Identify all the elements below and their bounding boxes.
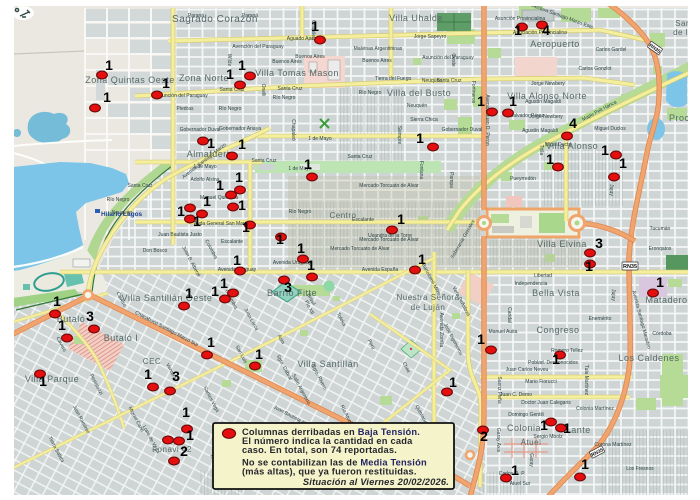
svg-text:Avención del Paraguay: Avención del Paraguay	[232, 44, 284, 50]
svg-text:Asunción del Paraguay: Asunción del Paraguay	[422, 55, 474, 61]
svg-text:1: 1	[511, 462, 519, 478]
svg-text:Atuel Sur: Atuel Sur	[510, 481, 531, 487]
svg-text:1: 1	[397, 211, 405, 227]
svg-text:(más altas), que ya fueron res: (más altas), que ya fueron restituidas.	[242, 467, 417, 477]
svg-text:Jorge Newbery: Jorge Newbery	[531, 81, 565, 87]
svg-text:ante: ante	[571, 425, 591, 435]
svg-text:Nuestra Señora: Nuestra Señora	[396, 293, 459, 302]
svg-text:Juan Carlos Neveu: Juan Carlos Neveu	[506, 367, 549, 373]
svg-text:Atuel: Atuel	[521, 438, 542, 447]
svg-text:1: 1	[203, 193, 211, 209]
svg-text:1: 1	[585, 258, 593, 274]
svg-text:Jorge Sapeyro: Jorge Sapeyro	[414, 34, 447, 40]
svg-text:Sagrado Corazón: Sagrado Corazón	[172, 14, 258, 25]
svg-text:1: 1	[297, 240, 305, 256]
svg-text:CEC: CEC	[143, 357, 161, 366]
svg-text:Saenz Peña: Saenz Peña	[496, 376, 502, 403]
svg-text:Jujuy: Jujuy	[610, 289, 616, 301]
svg-text:Trilla: Trilla	[538, 145, 544, 156]
svg-text:Córdoba: Córdoba	[652, 331, 671, 337]
svg-text:de Luján: de Luján	[411, 303, 446, 312]
svg-text:Río Negro: Río Negro	[107, 197, 130, 203]
svg-text:Independencia: Independencia	[515, 281, 548, 287]
svg-text:Miguel Duclos: Miguel Duclos	[594, 126, 626, 132]
svg-text:Villa del Busto: Villa del Busto	[387, 88, 451, 98]
svg-text:1: 1	[416, 130, 424, 146]
svg-text:Villa Santillán: Villa Santillán	[297, 359, 358, 369]
svg-text:Pueyrredón: Pueyrredón	[510, 176, 536, 182]
svg-text:1: 1	[449, 374, 457, 390]
svg-text:Situación al Viernes 20/02/202: Situación al Viernes 20/02/2026.	[303, 477, 449, 487]
svg-text:Garay: Garay	[528, 453, 534, 467]
svg-text:2: 2	[180, 443, 188, 459]
svg-text:1: 1	[207, 334, 215, 350]
svg-text:Avenida Zorrilla: Avenida Zorrilla	[438, 313, 444, 348]
svg-text:1: 1	[307, 257, 315, 273]
svg-text:Manuel Auita: Manuel Auita	[489, 329, 518, 335]
svg-text:Río Negro: Río Negro	[219, 106, 242, 112]
svg-text:Los Fresnos: Los Fresnos	[626, 466, 654, 472]
svg-text:Gobernador Duval: Gobernador Duval	[442, 127, 483, 133]
svg-text:Gobernador Anaya: Gobernador Anaya	[219, 126, 261, 132]
svg-text:Colonia: Colonia	[507, 423, 541, 433]
svg-text:1 de Mayo: 1 de Mayo	[308, 136, 332, 142]
svg-text:1: 1	[563, 420, 571, 436]
svg-text:Butaló I: Butaló I	[104, 333, 139, 343]
svg-text:Domingo Gentili: Domingo Gentili	[508, 412, 544, 418]
svg-text:Enemérito: Enemérito	[589, 316, 612, 322]
svg-text:1: 1	[238, 136, 246, 152]
svg-text:1: 1	[509, 93, 517, 109]
svg-text:Barrio Fitte: Barrio Fitte	[267, 288, 317, 298]
svg-text:1: 1	[656, 274, 664, 290]
svg-text:Neuquén: Neuquén	[422, 78, 443, 84]
svg-text:1: 1	[546, 151, 554, 167]
svg-text:1: 1	[177, 203, 185, 219]
svg-text:1: 1	[193, 213, 201, 229]
svg-text:Salvador Pérez: Salvador Pérez	[510, 113, 545, 119]
svg-text:Jujuy: Jujuy	[608, 184, 614, 196]
svg-text:3: 3	[284, 279, 292, 295]
svg-text:1: 1	[552, 351, 560, 367]
svg-text:Gobernador Duval: Gobernador Duval	[180, 127, 221, 133]
svg-text:1: 1	[216, 177, 224, 193]
svg-text:1: 1	[540, 417, 548, 433]
svg-text:Santa Cruz: Santa Cruz	[347, 154, 373, 160]
svg-text:Villa Alonso: Villa Alonso	[546, 141, 598, 151]
svg-text:Mercado Torcuato de Alvar: Mercado Torcuato de Alvar	[359, 183, 419, 189]
svg-text:1: 1	[235, 169, 243, 185]
svg-text:Malvinas Argentininas: Malvinas Argentininas	[354, 46, 403, 52]
svg-text:1: 1	[53, 293, 61, 309]
svg-text:1: 1	[207, 135, 215, 151]
svg-text:1: 1	[39, 373, 47, 389]
svg-text:Río Negro: Río Negro	[273, 95, 296, 101]
svg-text:1: 1	[220, 275, 228, 291]
svg-text:Villa Uhalde: Villa Uhalde	[389, 13, 443, 23]
svg-text:1: 1	[418, 251, 426, 267]
svg-text:Fortineros: Fortineros	[470, 81, 476, 104]
svg-text:Oeste: Oeste	[450, 53, 456, 67]
svg-text:Zona Norte: Zona Norte	[179, 73, 229, 83]
svg-text:Piedras: Piedras	[177, 106, 194, 112]
svg-text:2: 2	[480, 428, 488, 444]
svg-text:Villa Parque: Villa Parque	[25, 374, 79, 384]
svg-text:Centro: Centro	[329, 211, 356, 220]
svg-text:1: 1	[581, 456, 589, 472]
svg-text:Los Caldenes: Los Caldenes	[618, 353, 679, 363]
svg-text:1: 1	[242, 219, 250, 235]
svg-text:Aeropuerto: Aeropuerto	[530, 39, 580, 49]
svg-text:1: 1	[103, 89, 111, 105]
svg-text:Santa Cruz: Santa Cruz	[127, 183, 153, 189]
svg-text:Corona Martínez: Corona Martínez	[594, 442, 632, 448]
svg-text:4: 4	[569, 115, 577, 131]
svg-text:Fontana: Fontana	[418, 161, 424, 180]
svg-text:1: 1	[276, 231, 284, 247]
svg-text:1: 1	[162, 75, 170, 91]
svg-text:Tierra del Fuego: Tierra del Fuego	[375, 76, 412, 82]
svg-text:Buenos Aires: Buenos Aires	[362, 58, 392, 64]
svg-text:Garay Axis: Garay Axis	[495, 428, 501, 453]
svg-text:caso. En total, son 74 reporta: caso. En total, son 74 reportadas.	[242, 445, 397, 455]
svg-text:1: 1	[477, 331, 485, 347]
svg-text:Caridal: Caridal	[506, 307, 512, 323]
svg-text:Carlos Gardel: Carlos Gardel	[596, 47, 627, 53]
svg-text:Congreso: Congreso	[536, 325, 579, 335]
svg-text:Chapaleó: Chapaleó	[290, 119, 296, 141]
svg-text:RN35: RN35	[623, 264, 637, 270]
svg-text:1: 1	[58, 317, 66, 333]
svg-text:Villa Tomas Mason: Villa Tomas Mason	[255, 68, 339, 78]
svg-text:1: 1	[238, 57, 246, 73]
svg-text:3: 3	[86, 308, 94, 324]
svg-text:1: 1	[144, 366, 152, 382]
svg-text:4: 4	[542, 22, 550, 38]
svg-text:Escalante: Escalante	[221, 239, 243, 245]
svg-text:Libertad: Libertad	[534, 273, 552, 279]
svg-text:Tula Martínez: Tula Martínez	[583, 365, 589, 396]
svg-text:Doctor Juan Calegaris: Doctor Juan Calegaris	[521, 400, 571, 406]
svg-text:Tucumán: Tucumán	[650, 226, 671, 232]
svg-text:Villa Santillán Oeste: Villa Santillán Oeste	[122, 293, 213, 303]
svg-text:1: 1	[255, 346, 263, 362]
svg-text:1: 1	[211, 283, 219, 299]
svg-text:Buenos Aires: Buenos Aires	[295, 54, 325, 60]
svg-text:Santa Cruz: Santa Cruz	[251, 158, 277, 164]
svg-text:Mario Fiorucci: Mario Fiorucci	[525, 379, 556, 385]
svg-text:Eronqatos: Eronqatos	[649, 246, 672, 252]
svg-text:Avenida España: Avenida España	[362, 267, 399, 273]
svg-text:Wilde: Wilde	[226, 54, 232, 67]
svg-text:1: 1	[182, 404, 190, 420]
svg-text:Villa Alonso Norte: Villa Alonso Norte	[507, 91, 587, 101]
svg-text:Colonia Martínez: Colonia Martínez	[576, 406, 614, 412]
svg-text:1: 1	[233, 252, 241, 268]
svg-text:1: 1	[311, 18, 319, 34]
svg-text:Agustín Magaldi: Agustín Magaldi	[522, 128, 558, 134]
svg-text:Juan C. Demo: Juan C. Demo	[500, 392, 532, 398]
svg-text:Río Negro: Río Negro	[289, 209, 312, 215]
svg-text:1: 1	[514, 22, 522, 38]
svg-text:Mercado Torcuato de Alvar: Mercado Torcuato de Alvar	[330, 246, 390, 252]
svg-text:1: 1	[105, 57, 113, 73]
svg-text:Onelli: Onelli	[260, 84, 266, 97]
svg-text:Pampa: Pampa	[448, 172, 454, 188]
svg-text:1: 1	[601, 142, 609, 158]
svg-text:Hilario Lagos: Hilario Lagos	[101, 211, 143, 218]
svg-text:Bella Vista: Bella Vista	[532, 288, 580, 298]
svg-text:1: 1	[477, 93, 485, 109]
svg-text:Siempre: Siempre	[396, 126, 402, 145]
svg-text:Asunción del Paraguay: Asunción del Paraguay	[156, 93, 208, 99]
svg-text:1: 1	[304, 156, 312, 172]
svg-text:Santa Cruz: Santa Cruz	[277, 86, 303, 92]
svg-text:1: 1	[226, 66, 234, 82]
svg-text:1: 1	[238, 197, 246, 213]
svg-text:Juan Bautista Justo: Juan Bautista Justo	[158, 232, 202, 238]
svg-text:1: 1	[619, 155, 627, 171]
svg-text:Neuquén: Neuquén	[407, 103, 428, 109]
svg-text:3: 3	[595, 235, 603, 251]
svg-text:Don Bosco: Don Bosco	[143, 248, 168, 254]
svg-text:Río Negro: Río Negro	[359, 90, 382, 96]
svg-text:1: 1	[186, 427, 194, 443]
svg-text:1: 1	[185, 285, 193, 301]
svg-text:Carlos Gonzlot: Carlos Gonzlot	[578, 66, 612, 72]
svg-text:Sierra Chica: Sierra Chica	[410, 117, 438, 123]
svg-text:Villa Elvina: Villa Elvina	[537, 239, 587, 249]
svg-text:3: 3	[172, 368, 180, 384]
